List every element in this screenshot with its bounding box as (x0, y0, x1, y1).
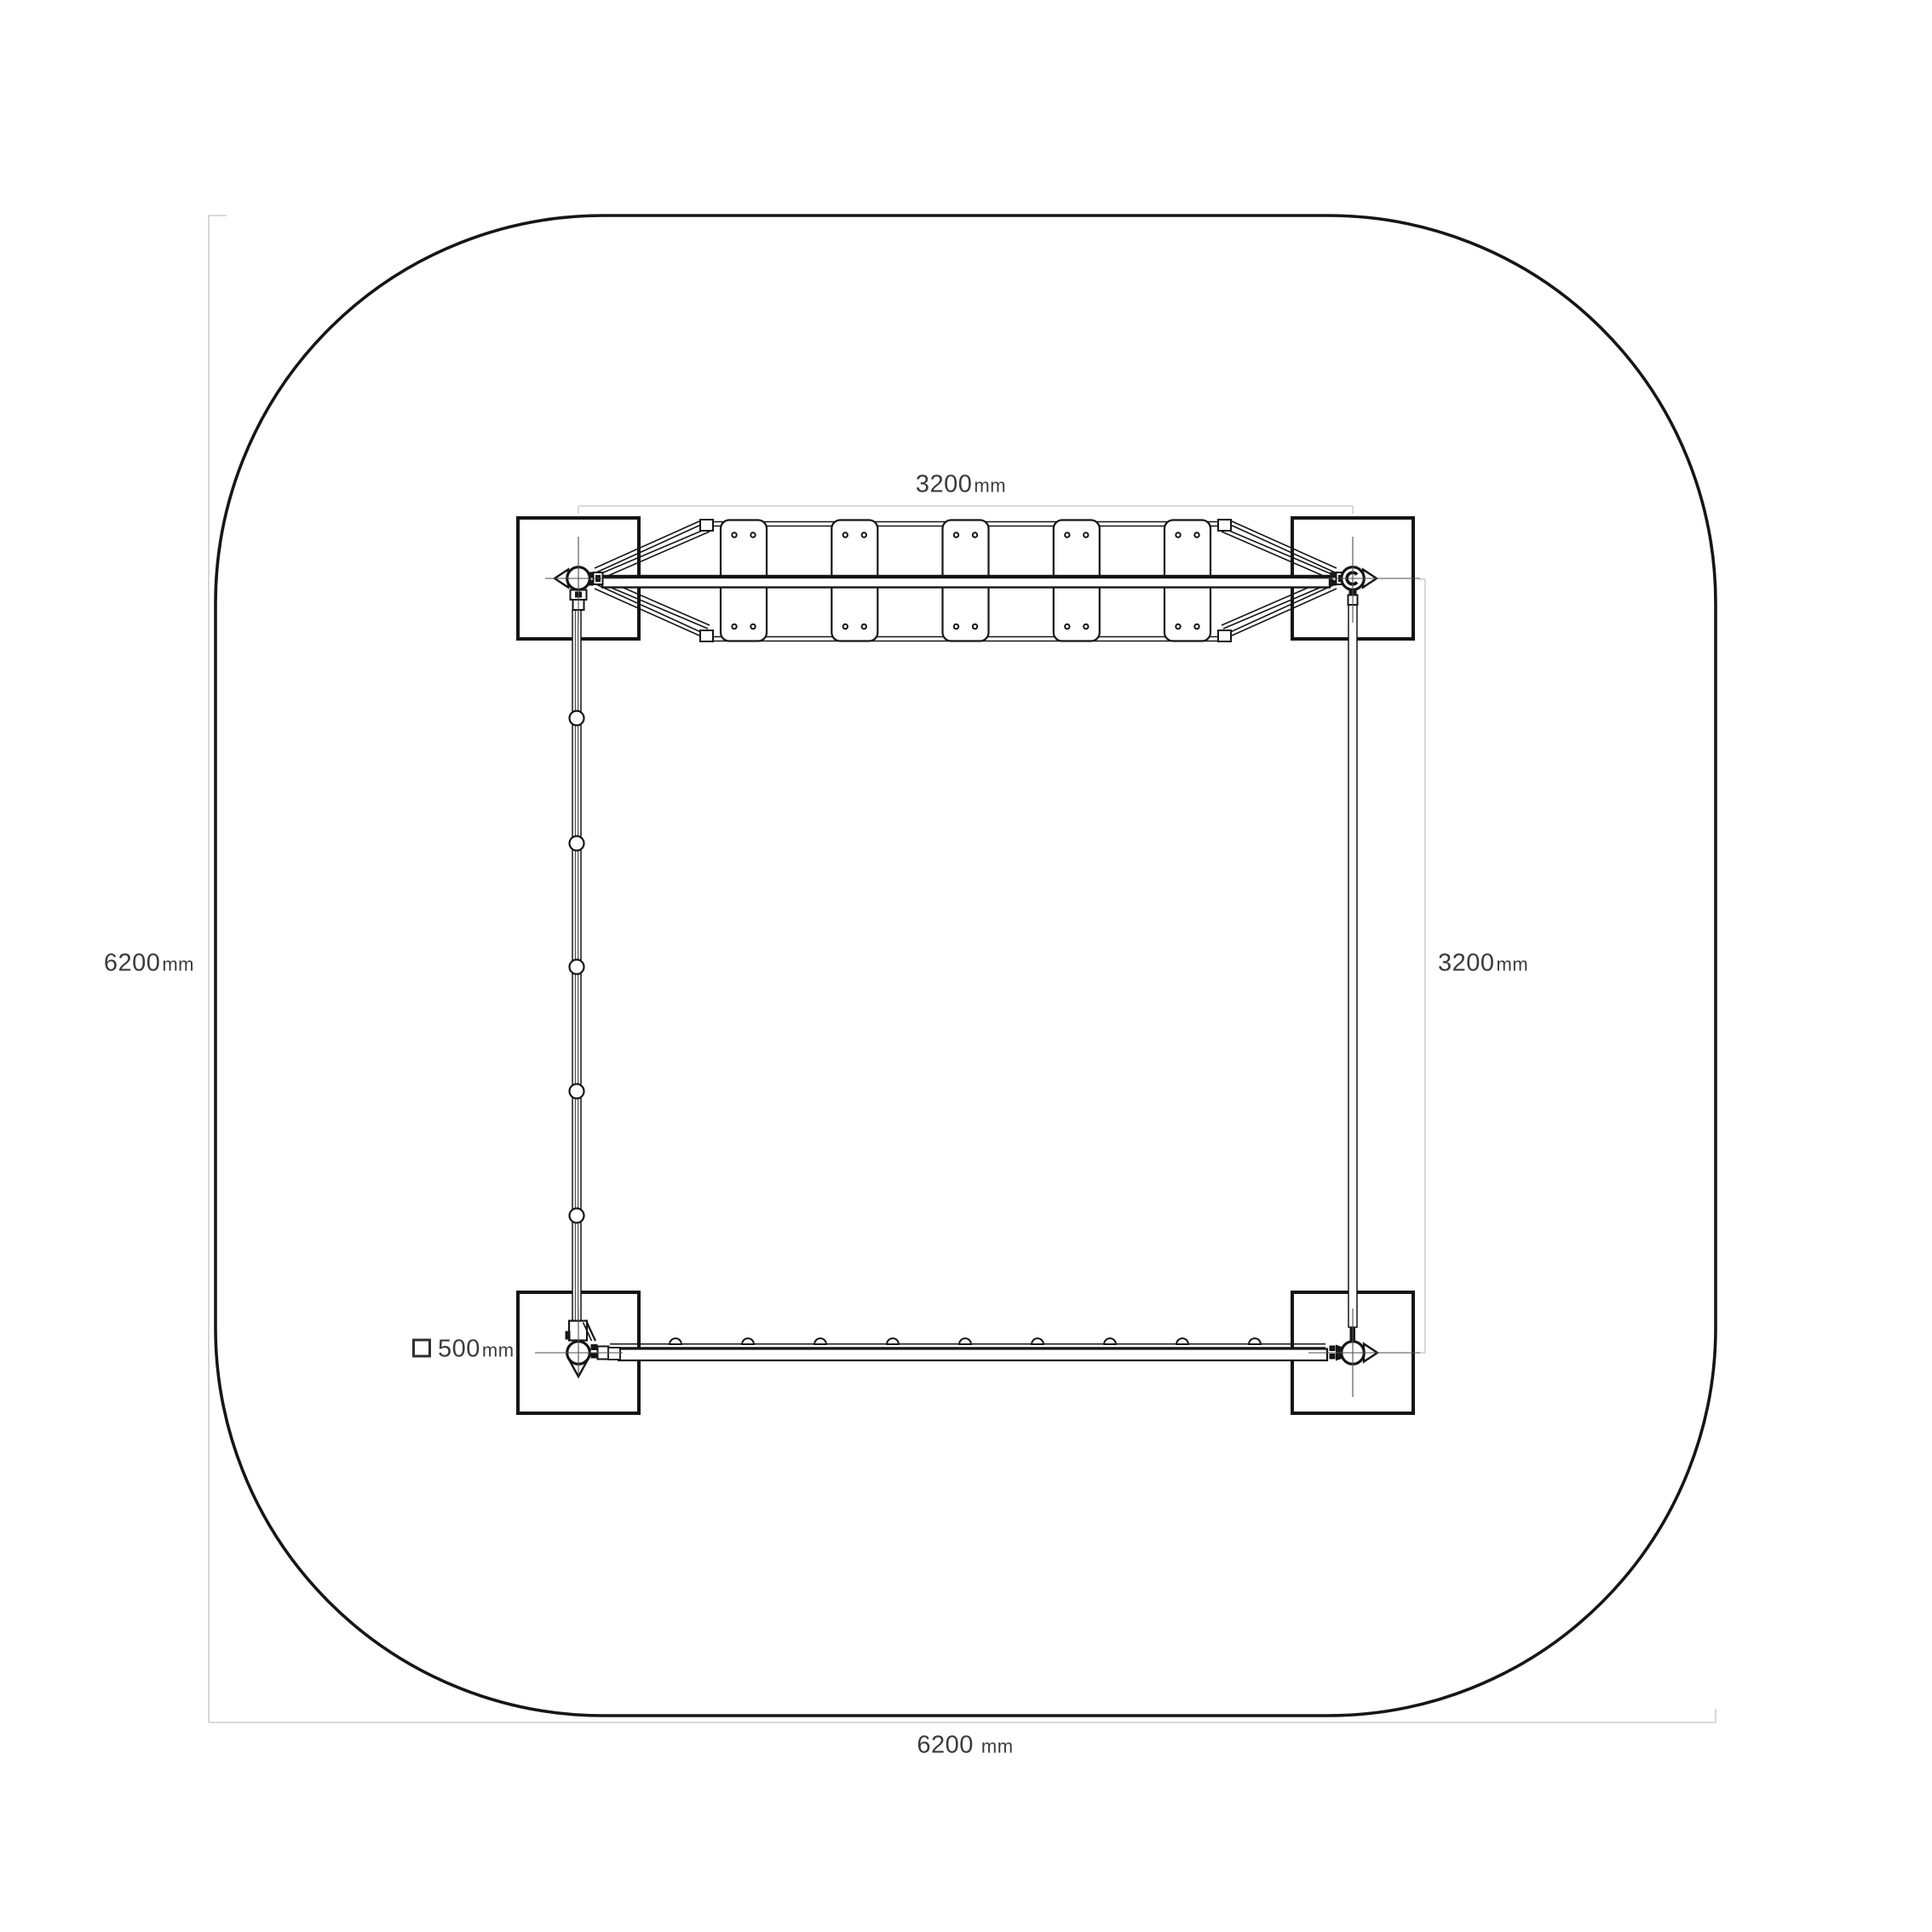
technical-drawing (0, 0, 1932, 1932)
dimension-unit: mm (1497, 954, 1529, 975)
dimension-label-top: 3200mm (916, 471, 1006, 499)
dimension-value: 3200 (916, 471, 973, 498)
dimension-value: 500 (438, 1336, 480, 1363)
dimension-value: 6200 (917, 1732, 974, 1759)
dimension-value: 6200 (104, 950, 161, 977)
rail-knobs (670, 1338, 1261, 1344)
dimension-label-bottom: 6200mm (917, 1732, 1013, 1760)
dimension-unit: mm (162, 954, 194, 975)
dimension-value: 3200 (1438, 950, 1495, 977)
dimension-unit: mm (974, 475, 1006, 497)
plan-drawing-canvas: 3200mm 3200mm 6200mm 6200mm 500mm (0, 0, 1932, 1932)
dimension-label-foundation: 500mm (412, 1336, 515, 1364)
dimension-label-left: 6200mm (104, 950, 194, 978)
dimension-label-right: 3200mm (1438, 950, 1528, 978)
dimension-unit: mm (981, 1736, 1014, 1757)
square-section-icon (412, 1339, 431, 1358)
corner-posts (555, 567, 1377, 1377)
right-support-tube (1348, 605, 1357, 1327)
main-beam (602, 576, 1330, 588)
top-bridge-assembly (595, 520, 1337, 641)
dimension-unit: mm (482, 1340, 515, 1361)
foundation-pads (518, 518, 1413, 1413)
center-crosshairs (535, 537, 1420, 1397)
left-climbing-rope (570, 610, 584, 1321)
corner-post-hardware (566, 566, 1358, 1361)
bottom-balance-rail (610, 1338, 1327, 1360)
